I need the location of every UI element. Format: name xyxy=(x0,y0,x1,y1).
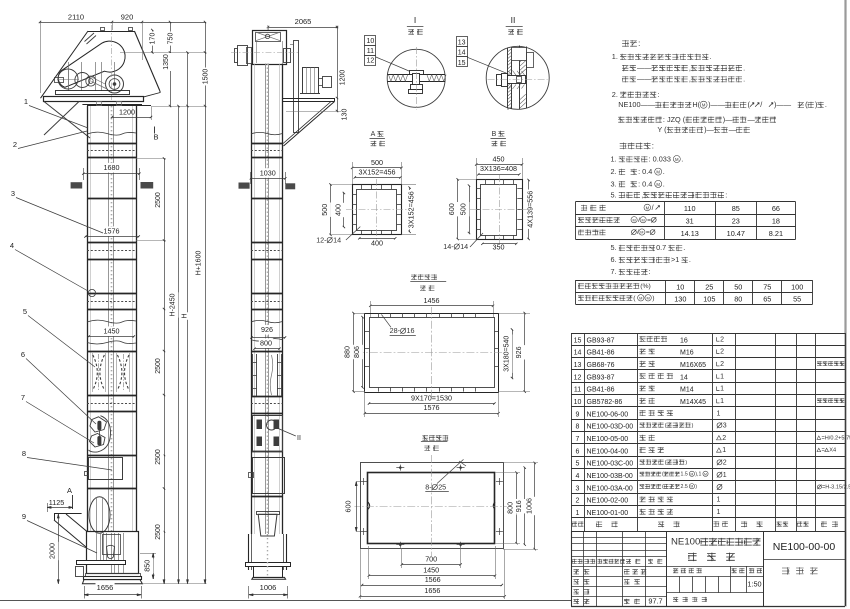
svg-text:750: 750 xyxy=(168,33,175,45)
svg-text:12: 12 xyxy=(574,374,582,381)
svg-text:(%): (%) xyxy=(640,283,651,290)
svg-text:1: 1 xyxy=(723,472,727,479)
svg-text:65: 65 xyxy=(763,295,771,304)
svg-text:=H-3.15/2.5: =H-3.15/2.5 xyxy=(822,485,850,491)
svg-text:NE100-06-00: NE100-06-00 xyxy=(587,411,629,418)
svg-text:400: 400 xyxy=(333,204,342,216)
svg-text:2500: 2500 xyxy=(155,524,162,540)
svg-text:(: ( xyxy=(665,460,667,466)
svg-text:M: M xyxy=(646,296,649,301)
svg-text:2: 2 xyxy=(720,361,724,368)
svg-text:2500: 2500 xyxy=(155,358,162,374)
svg-text:10: 10 xyxy=(367,38,375,45)
svg-text:——: —— xyxy=(637,63,652,72)
svg-text:4: 4 xyxy=(10,241,14,250)
svg-text:7.: 7. xyxy=(611,267,617,276)
svg-text:)—: )— xyxy=(704,125,714,134)
svg-text:NE100-01-00: NE100-01-00 xyxy=(587,510,629,517)
svg-text:9: 9 xyxy=(22,512,26,521)
svg-text:10: 10 xyxy=(676,283,684,292)
svg-text:600: 600 xyxy=(344,501,353,513)
svg-text:2110: 2110 xyxy=(68,13,84,22)
svg-text:NE100-03A-00: NE100-03A-00 xyxy=(587,485,633,492)
svg-text::: : xyxy=(638,39,640,48)
svg-text::: : xyxy=(725,190,727,199)
svg-text:=: = xyxy=(646,229,650,236)
svg-text:NE100-05-00: NE100-05-00 xyxy=(587,436,629,443)
svg-text:NE100——: NE100—— xyxy=(618,100,656,109)
svg-text:GB41-86: GB41-86 xyxy=(587,350,615,357)
svg-text:2: 2 xyxy=(576,498,580,505)
svg-text:10: 10 xyxy=(574,399,582,406)
svg-text:926: 926 xyxy=(514,346,523,358)
svg-text:B: B xyxy=(153,133,158,142)
svg-text:85: 85 xyxy=(732,204,740,213)
svg-text:M: M xyxy=(702,103,706,108)
svg-text:5.: 5. xyxy=(611,190,617,199)
svg-text:H+1600: H+1600 xyxy=(196,251,203,276)
svg-text:16: 16 xyxy=(680,337,688,344)
svg-text:M: M xyxy=(704,472,707,476)
svg-text:14-: 14- xyxy=(443,242,454,251)
svg-text:(: ( xyxy=(662,472,664,478)
svg-text:105: 105 xyxy=(703,295,715,304)
svg-text:H-2450: H-2450 xyxy=(170,293,177,316)
svg-text:(: ( xyxy=(665,423,667,429)
svg-text::: : xyxy=(649,267,651,276)
svg-text:31: 31 xyxy=(686,217,694,226)
svg-text:600: 600 xyxy=(447,203,456,215)
svg-text:1.: 1. xyxy=(611,155,617,164)
svg-text:1450: 1450 xyxy=(423,566,439,575)
svg-text:M: M xyxy=(656,182,660,187)
svg-text:10.47: 10.47 xyxy=(727,229,745,238)
svg-text:II: II xyxy=(511,15,516,25)
svg-text:14.13: 14.13 xyxy=(681,229,699,238)
svg-text:50: 50 xyxy=(734,283,742,292)
svg-text:5: 5 xyxy=(576,461,580,468)
svg-text:110: 110 xyxy=(684,204,696,213)
svg-text:),1: ),1 xyxy=(695,472,701,478)
svg-text:12: 12 xyxy=(367,58,375,65)
svg-text:)——: )—— xyxy=(774,100,792,109)
svg-text:2.: 2. xyxy=(612,90,618,99)
svg-text:2065: 2065 xyxy=(295,17,312,26)
svg-text:): ) xyxy=(815,100,817,109)
svg-text:M16X65: M16X65 xyxy=(680,362,706,369)
svg-text:GB5782-86: GB5782-86 xyxy=(587,399,623,406)
svg-text:.: . xyxy=(743,63,745,72)
svg-text:.: . xyxy=(663,167,665,176)
svg-text:1: 1 xyxy=(720,373,724,380)
svg-text:1200: 1200 xyxy=(340,70,347,86)
svg-text:7: 7 xyxy=(576,436,580,443)
svg-text:: 0.4: : 0.4 xyxy=(638,167,652,176)
svg-text:500: 500 xyxy=(371,158,383,167)
svg-text:I: I xyxy=(414,15,416,25)
svg-text:25: 25 xyxy=(438,482,446,491)
svg-text:11: 11 xyxy=(367,48,374,55)
svg-text:1350: 1350 xyxy=(163,54,170,70)
svg-text:3X136=408: 3X136=408 xyxy=(480,164,517,173)
svg-text:,: , xyxy=(689,63,691,72)
svg-text:806: 806 xyxy=(352,346,361,358)
svg-text:170: 170 xyxy=(150,33,157,45)
svg-text:2500: 2500 xyxy=(155,449,162,465)
svg-text:66: 66 xyxy=(772,204,780,213)
svg-text:2: 2 xyxy=(720,336,724,343)
svg-text:1576: 1576 xyxy=(424,403,440,412)
svg-text:6: 6 xyxy=(576,448,580,455)
svg-text:/: / xyxy=(652,205,654,212)
svg-text:75: 75 xyxy=(763,283,771,292)
svg-text:B: B xyxy=(492,131,497,138)
svg-text:880: 880 xyxy=(343,346,352,358)
svg-text:—: — xyxy=(729,125,737,134)
svg-text:350: 350 xyxy=(493,243,505,252)
svg-text:NE100-03D-00: NE100-03D-00 xyxy=(587,424,634,431)
svg-text:2: 2 xyxy=(720,349,724,356)
svg-text:8: 8 xyxy=(576,424,580,431)
svg-text:1006: 1006 xyxy=(260,583,277,592)
svg-text:1: 1 xyxy=(722,447,726,454)
svg-text:850: 850 xyxy=(143,560,152,572)
svg-text:1: 1 xyxy=(576,510,580,517)
svg-text:M: M xyxy=(691,472,694,476)
svg-text:M: M xyxy=(656,170,660,175)
svg-text:GB93-87: GB93-87 xyxy=(587,337,615,344)
svg-text:): ) xyxy=(695,484,697,490)
svg-text:8.21: 8.21 xyxy=(769,229,783,238)
svg-text:16: 16 xyxy=(407,326,415,335)
svg-text:8: 8 xyxy=(22,449,26,458)
svg-text:5.: 5. xyxy=(611,243,617,252)
svg-text:916: 916 xyxy=(514,500,523,512)
svg-text:X4: X4 xyxy=(829,448,836,454)
svg-text:M: M xyxy=(632,218,635,222)
svg-text:)——: )—— xyxy=(708,100,726,109)
svg-text:1456: 1456 xyxy=(424,296,440,305)
svg-text:55: 55 xyxy=(793,295,801,304)
svg-text:): ) xyxy=(652,295,654,302)
svg-text:—: — xyxy=(748,115,756,124)
svg-text:.: . xyxy=(710,52,712,61)
svg-text:M: M xyxy=(639,296,642,301)
svg-text:3X152=456: 3X152=456 xyxy=(407,191,416,228)
svg-text:130: 130 xyxy=(674,295,686,304)
svg-text:M: M xyxy=(675,157,679,162)
svg-text:3: 3 xyxy=(723,423,727,430)
svg-text:500: 500 xyxy=(320,204,329,216)
svg-text:=: = xyxy=(822,448,825,454)
svg-text:1: 1 xyxy=(24,97,28,106)
svg-text:M: M xyxy=(641,218,644,222)
svg-text:80: 80 xyxy=(734,295,742,304)
svg-text:NE100-04-00: NE100-04-00 xyxy=(587,448,629,455)
svg-text:2500: 2500 xyxy=(155,192,162,208)
svg-text:3: 3 xyxy=(11,189,15,198)
svg-text:700: 700 xyxy=(425,555,437,564)
svg-text:500: 500 xyxy=(459,203,468,215)
svg-text:25: 25 xyxy=(705,283,713,292)
svg-text:GB93-87: GB93-87 xyxy=(587,374,615,381)
svg-text:NE100-00-00: NE100-00-00 xyxy=(773,541,836,553)
svg-text:400: 400 xyxy=(371,239,383,248)
svg-text::: : xyxy=(652,141,654,150)
svg-text:1656: 1656 xyxy=(424,586,440,595)
svg-text:3X180=540: 3X180=540 xyxy=(504,336,511,372)
svg-text:23: 23 xyxy=(732,217,740,226)
svg-text:13: 13 xyxy=(574,362,582,369)
svg-text:15: 15 xyxy=(574,337,582,344)
svg-text:926: 926 xyxy=(261,325,273,334)
svg-text:1656: 1656 xyxy=(97,583,114,592)
svg-text:1: 1 xyxy=(717,497,721,504)
svg-text:=H/0.2+5.75: =H/0.2+5.75 xyxy=(822,435,850,441)
svg-text:A: A xyxy=(67,486,72,495)
svg-text:M14: M14 xyxy=(680,387,694,394)
svg-text:M14X45: M14X45 xyxy=(680,399,706,406)
svg-text:A: A xyxy=(371,131,376,138)
svg-text::: : xyxy=(657,90,659,99)
svg-text:5: 5 xyxy=(23,307,27,316)
svg-text:4: 4 xyxy=(576,473,580,480)
svg-text:9: 9 xyxy=(576,411,580,418)
svg-text:14: 14 xyxy=(460,242,468,251)
svg-text:.: . xyxy=(743,75,745,84)
svg-text:M: M xyxy=(640,231,643,235)
svg-text:.: . xyxy=(689,255,691,264)
svg-text:GB41-86: GB41-86 xyxy=(587,387,615,394)
svg-text:1030: 1030 xyxy=(260,168,276,177)
svg-text:M: M xyxy=(691,485,694,489)
svg-text:2000: 2000 xyxy=(48,543,57,559)
svg-text:1: 1 xyxy=(720,386,724,393)
svg-text:1: 1 xyxy=(717,410,721,417)
svg-text:3: 3 xyxy=(576,485,580,492)
svg-text:920: 920 xyxy=(121,13,134,22)
svg-text:2: 2 xyxy=(13,140,17,149)
svg-text:0.7: 0.7 xyxy=(656,243,666,252)
svg-text:1500: 1500 xyxy=(203,69,210,85)
svg-text:18: 18 xyxy=(772,217,780,226)
svg-text:1006: 1006 xyxy=(525,498,534,514)
svg-text:: 0.4: : 0.4 xyxy=(638,179,652,188)
svg-text:800: 800 xyxy=(506,502,515,514)
svg-text:2: 2 xyxy=(722,435,726,442)
svg-text:14: 14 xyxy=(333,235,341,244)
svg-text:M: M xyxy=(646,205,650,210)
svg-text:>1: >1 xyxy=(671,255,679,264)
svg-text:: 0.033: : 0.033 xyxy=(649,155,671,164)
svg-text:Y (: Y ( xyxy=(657,125,667,134)
svg-text:3X152=456: 3X152=456 xyxy=(359,167,396,176)
svg-text:.: . xyxy=(681,155,683,164)
svg-text:H: H xyxy=(182,313,189,318)
svg-text:): ) xyxy=(692,423,694,429)
svg-text:2.: 2. xyxy=(611,167,617,176)
svg-text:3.: 3. xyxy=(611,179,617,188)
svg-text:1125: 1125 xyxy=(49,498,64,507)
svg-text:97.7: 97.7 xyxy=(648,596,662,605)
svg-text:1.: 1. xyxy=(612,52,618,61)
svg-text:1: 1 xyxy=(720,398,724,405)
svg-text:13: 13 xyxy=(458,39,466,46)
svg-text:=: = xyxy=(647,217,651,224)
svg-text:GB68-76: GB68-76 xyxy=(587,362,615,369)
svg-text:1:50: 1:50 xyxy=(747,580,761,589)
svg-text:(: ( xyxy=(662,484,664,490)
svg-text:11: 11 xyxy=(574,387,581,394)
svg-text:NE100-02-00: NE100-02-00 xyxy=(587,498,629,505)
svg-text:,: , xyxy=(641,190,643,199)
svg-text:800: 800 xyxy=(260,339,272,348)
svg-text:8-: 8- xyxy=(425,482,432,491)
svg-text:450: 450 xyxy=(493,155,505,164)
svg-text:)—: )— xyxy=(723,115,733,124)
svg-text:,: , xyxy=(689,75,691,84)
svg-text:6.: 6. xyxy=(611,255,617,264)
svg-text:14: 14 xyxy=(680,374,688,381)
svg-text:II: II xyxy=(297,435,301,442)
svg-text:1: 1 xyxy=(717,509,721,516)
svg-text:.: . xyxy=(825,100,827,109)
svg-text:9X170=1530: 9X170=1530 xyxy=(411,394,452,403)
svg-text:.: . xyxy=(663,179,665,188)
svg-text:NE100-03C-00: NE100-03C-00 xyxy=(587,461,634,468)
svg-text:1450: 1450 xyxy=(104,327,120,336)
svg-text:1576: 1576 xyxy=(104,227,120,236)
svg-text:1200: 1200 xyxy=(119,108,135,117)
svg-text:NE100-03B-00: NE100-03B-00 xyxy=(587,473,633,480)
svg-text:14: 14 xyxy=(458,50,466,57)
svg-text:H(: H( xyxy=(692,100,700,109)
svg-text:1680: 1680 xyxy=(104,163,120,172)
svg-text:130: 130 xyxy=(342,109,349,121)
svg-text:28-: 28- xyxy=(390,326,401,335)
svg-text:M16: M16 xyxy=(680,350,694,357)
svg-text:1566: 1566 xyxy=(425,575,441,584)
svg-text:): ) xyxy=(685,460,687,466)
svg-text:12-: 12- xyxy=(316,235,327,244)
svg-text:4X139=556: 4X139=556 xyxy=(526,191,535,228)
svg-text:6: 6 xyxy=(21,350,25,359)
svg-text:100: 100 xyxy=(791,283,803,292)
svg-text:2.5: 2.5 xyxy=(681,484,688,490)
svg-text:——: —— xyxy=(637,75,652,84)
svg-text:NE100: NE100 xyxy=(671,537,700,548)
svg-text:1.5: 1.5 xyxy=(681,472,688,478)
svg-text:.: . xyxy=(683,243,685,252)
svg-text:14: 14 xyxy=(574,350,582,357)
svg-text:: JZQ (: : JZQ ( xyxy=(663,115,686,124)
svg-text:2: 2 xyxy=(723,460,727,467)
svg-text:7: 7 xyxy=(21,393,25,402)
svg-text:15: 15 xyxy=(458,60,466,67)
